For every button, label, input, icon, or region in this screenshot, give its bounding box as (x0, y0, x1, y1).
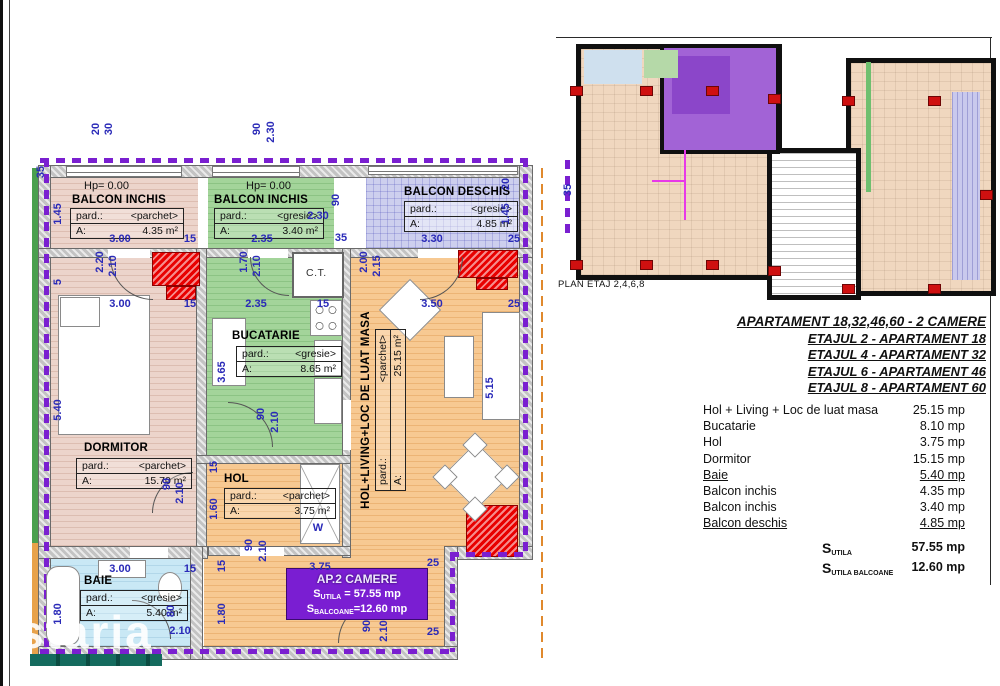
room-box-bucatarie: pard.:<gresie> A:8.65 m² (236, 346, 342, 377)
key-plan-marker (570, 86, 583, 96)
floor-label: pard.: (410, 203, 437, 215)
room-box-hol: pard.:<parchet> A:3.75 m² (224, 488, 336, 519)
area-row: Hol + Living + Loc de luat masa25.15 mp (703, 402, 965, 418)
door-gap-baie (130, 547, 168, 558)
dimension-label: 15 (208, 461, 220, 473)
dimension-label: 2.10 (251, 255, 263, 276)
area-row-value: 4.35 mp (920, 483, 965, 499)
area-row-label: Balcon inchis (703, 499, 777, 515)
area-row-value: 8.10 mp (920, 418, 965, 434)
dimension-label: 3.30 (421, 233, 442, 245)
hp-label-balcon1: Hp= 0.00 (84, 180, 129, 192)
key-plan-marker (640, 86, 653, 96)
apartment-badge-title: AP.2 CAMERE (292, 572, 422, 586)
dimension-label: 2.35 (245, 298, 266, 310)
key-plan-marker (980, 190, 993, 200)
floor-label: pard.: (86, 592, 113, 604)
pillar-2b (476, 278, 508, 290)
total-sutila-label: SUTILA (822, 540, 852, 557)
floor-label: pard.: (242, 348, 269, 360)
dimension-label: 35 (35, 166, 47, 178)
dimension-label: 2.10 (169, 625, 190, 637)
room-label-living: HOL+LIVING+LOC DE LUAT MASA pard.:<parch… (360, 285, 430, 535)
dimension-label: 20 (500, 178, 512, 190)
insulation-dash-step-h (450, 552, 528, 557)
dimension-label: 3.65 (216, 361, 228, 382)
room-name-hol: HOL (224, 473, 249, 485)
dimension-label: 15 (184, 563, 196, 575)
area-row-label: Hol + Living + Loc de luat masa (703, 402, 878, 418)
apartment-header: ETAJUL 4 - APARTAMENT 32 (700, 347, 986, 364)
railing-balcon-deschis (368, 166, 518, 175)
area-row: Hol3.75 mp (703, 434, 965, 450)
area-row: Bucatarie8.10 mp (703, 418, 965, 434)
dimension-label: 5 (52, 279, 64, 285)
bed-pillow (60, 297, 100, 327)
area-value: 4.35 m² (142, 225, 178, 237)
window-balcon1 (66, 166, 182, 177)
dimension-label: W (313, 522, 323, 534)
dimension-label: 5.40 (52, 399, 64, 420)
key-plan-marker (706, 86, 719, 96)
key-plan-caption: PLAN ETAJ 2,4,6,8 (558, 279, 645, 290)
coffee-table (444, 336, 474, 398)
total-sutila: SUTILA 57.55 mp (822, 540, 965, 557)
key-plan (556, 40, 990, 292)
area-value: 3.40 m² (282, 225, 318, 237)
room-box-living: pard.:<parchet> A:25.15 m² (375, 329, 406, 491)
key-plan-marker (928, 96, 941, 106)
dimension-label: 2.10 (107, 255, 119, 276)
apartment-badge: AP.2 CAMERE SUTILA = 57.55 mp SBALCOANE=… (286, 568, 428, 620)
area-value: 8.65 m² (300, 363, 336, 375)
pillar-1 (152, 252, 200, 286)
total-sutila-value: 57.55 mp (911, 540, 965, 557)
room-name-dormitor: DORMITOR (84, 442, 148, 454)
dimension-label: 15 (184, 233, 196, 245)
key-plan-marker (570, 260, 583, 270)
area-row-label: Dormitor (703, 451, 751, 467)
area-row-label: Hol (703, 434, 722, 450)
dimension-label: 1.45 (52, 203, 64, 224)
area-table: Hol + Living + Loc de luat masa25.15 mpB… (703, 402, 965, 532)
area-row-value: 3.40 mp (920, 499, 965, 515)
area-label: A: (220, 225, 230, 237)
insulation-dash-step-v (450, 552, 455, 652)
area-row-label: Baie (703, 467, 728, 483)
apartment-headers: APARTAMENT 18,32,46,60 - 2 CAMEREETAJUL … (700, 314, 986, 397)
total-sutila-balcoane-label: SUTILA BALCOANE (822, 560, 893, 577)
area-row-label: Bucatarie (703, 418, 756, 434)
window-balcon2 (212, 166, 300, 177)
dimension-label: 15 (216, 560, 228, 572)
floor-label: pard.: (220, 210, 247, 222)
dimension-label: 1.60 (208, 498, 220, 519)
area-row-label: Balcon deschis (703, 515, 787, 531)
dimension-label: 3.00 (109, 298, 130, 310)
area-row: Balcon inchis4.35 mp (703, 483, 965, 499)
dimension-label: 2.15 (371, 255, 383, 276)
area-label: A: (82, 475, 92, 487)
area-label: A: (76, 225, 86, 237)
area-row-value: 25.15 mp (913, 402, 965, 418)
axis-dash-orange (541, 168, 543, 660)
kitchen-sink (314, 378, 342, 424)
dimension-label: 90 (243, 539, 255, 551)
watermark: staria (18, 605, 153, 659)
apartment-header: ETAJUL 2 - APARTAMENT 18 (700, 331, 986, 348)
dimension-label: 2.10 (269, 411, 281, 432)
dimension-label: 15 (184, 298, 196, 310)
pillar-2 (458, 250, 518, 278)
floor-value: <parchet> (377, 335, 389, 382)
dimension-label: 2.10 (378, 620, 390, 641)
floor-value: <parchet> (283, 490, 330, 502)
dimension-label: 2.20 (94, 251, 106, 272)
floor-label: pard.: (76, 210, 103, 222)
area-value: 3.75 m² (294, 505, 330, 517)
area-label: A: (410, 218, 420, 230)
total-sutila-balcoane: SUTILA BALCOANE 12.60 mp (822, 560, 965, 577)
dimension-label: 90 (161, 478, 173, 490)
dimension-label: 25 (508, 298, 520, 310)
floor-value: <parchet> (131, 210, 178, 222)
wall-dorm-bucatarie (196, 248, 207, 558)
key-plan-marker (706, 260, 719, 270)
room-name-balcon2: BALCON INCHIS (214, 194, 308, 206)
dimension-label: 1.80 (52, 603, 64, 624)
insulation-dash-right (523, 158, 528, 556)
floor-value: <gresie> (141, 592, 182, 604)
apartment-header: APARTAMENT 18,32,46,60 - 2 CAMERE (700, 314, 986, 331)
dimension-label: 90 (361, 620, 373, 632)
key-plan-markers (556, 40, 990, 292)
dimension-label: 5.15 (484, 377, 496, 398)
dimension-label: 2.30 (307, 210, 328, 222)
area-label: A: (230, 505, 240, 517)
ct-label: C.T. (306, 267, 327, 279)
dimension-label: 80 (165, 605, 177, 617)
dimension-label: 20 (90, 123, 102, 135)
sofa (482, 312, 520, 420)
apartment-header: ETAJUL 6 - APARTAMENT 46 (700, 364, 986, 381)
area-row-value: 5.40 mp (920, 467, 965, 483)
area-label: A: (242, 363, 252, 375)
room-name-bucatarie: BUCATARIE (232, 330, 300, 342)
key-plan-marker (640, 260, 653, 270)
dimension-label: 90 (251, 123, 263, 135)
dimension-label: 3.75 (309, 561, 330, 573)
dimension-label: 2.00 (358, 251, 370, 272)
area-value: 25.15 m² (392, 335, 404, 376)
dimension-label: 2.10 (174, 482, 186, 503)
area-label: A: (392, 475, 404, 485)
area-row-label: Balcon inchis (703, 483, 777, 499)
dimension-label: 1.45 (500, 203, 512, 224)
floor-plan-page: C.T. (0, 0, 1000, 686)
frame-top-line (556, 37, 992, 38)
area-row-value: 4.85 mp (920, 515, 965, 531)
key-plan-marker (842, 96, 855, 106)
area-row: Dormitor15.15 mp (703, 451, 965, 467)
floor-label: pard.: (82, 460, 109, 472)
room-name-balcon-deschis: BALCON DESCHIS (404, 186, 510, 198)
dimension-label: 2.35 (251, 233, 272, 245)
room-name-baie: BAIE (84, 575, 112, 587)
dimension-label: 25 (508, 233, 520, 245)
area-row: Balcon inchis3.40 mp (703, 499, 965, 515)
dimension-label: 2.10 (257, 540, 269, 561)
dimension-label: 30 (103, 123, 115, 135)
key-plan-marker (842, 284, 855, 294)
apartment-header: ETAJUL 8 - APARTAMENT 60 (700, 380, 986, 397)
key-plan-marker (928, 284, 941, 294)
apartment-badge-sutila: SUTILA = 57.55 mp (292, 588, 422, 601)
hp-label-balcon2: Hp= 0.00 (246, 180, 291, 192)
insulation-dash-top (40, 158, 528, 163)
dimension-label: 35 (335, 232, 347, 244)
dimension-label: 90 (255, 408, 267, 420)
dimension-label: 25 (427, 626, 439, 638)
floor-value: <gresie> (295, 348, 336, 360)
dimension-label: 1.70 (238, 251, 250, 272)
door-gap-bucatarie (343, 400, 351, 450)
dimension-label: 2.30 (265, 121, 277, 142)
dimension-label: 15 (317, 298, 329, 310)
dimension-label: 25 (427, 557, 439, 569)
area-row-value: 3.75 mp (920, 434, 965, 450)
area-row: Balcon deschis4.85 mp (703, 515, 965, 531)
wall-baie-top (38, 546, 208, 559)
dimension-label: 90 (330, 194, 342, 206)
floor-label: pard.: (377, 458, 389, 485)
dimension-label: 1.80 (216, 603, 228, 624)
room-name-balcon1: BALCON INCHIS (72, 194, 166, 206)
apartment-badge-sbalcoane: SBALCOANE=12.60 mp (292, 603, 422, 616)
area-row-value: 15.15 mp (913, 451, 965, 467)
dimension-label: 3.50 (421, 298, 442, 310)
dimension-label: 3.00 (109, 563, 130, 575)
room-name-living: HOL+LIVING+LOC DE LUAT MASA (360, 311, 372, 509)
key-plan-marker (768, 266, 781, 276)
key-plan-marker (768, 94, 781, 104)
dimension-label: 3.00 (109, 233, 130, 245)
floor-value: <parchet> (139, 460, 186, 472)
area-row: Baie5.40 mp (703, 467, 965, 483)
floor-label: pard.: (230, 490, 257, 502)
floor-plan: C.T. (0, 0, 556, 686)
total-sutila-balcoane-value: 12.60 mp (911, 560, 965, 577)
